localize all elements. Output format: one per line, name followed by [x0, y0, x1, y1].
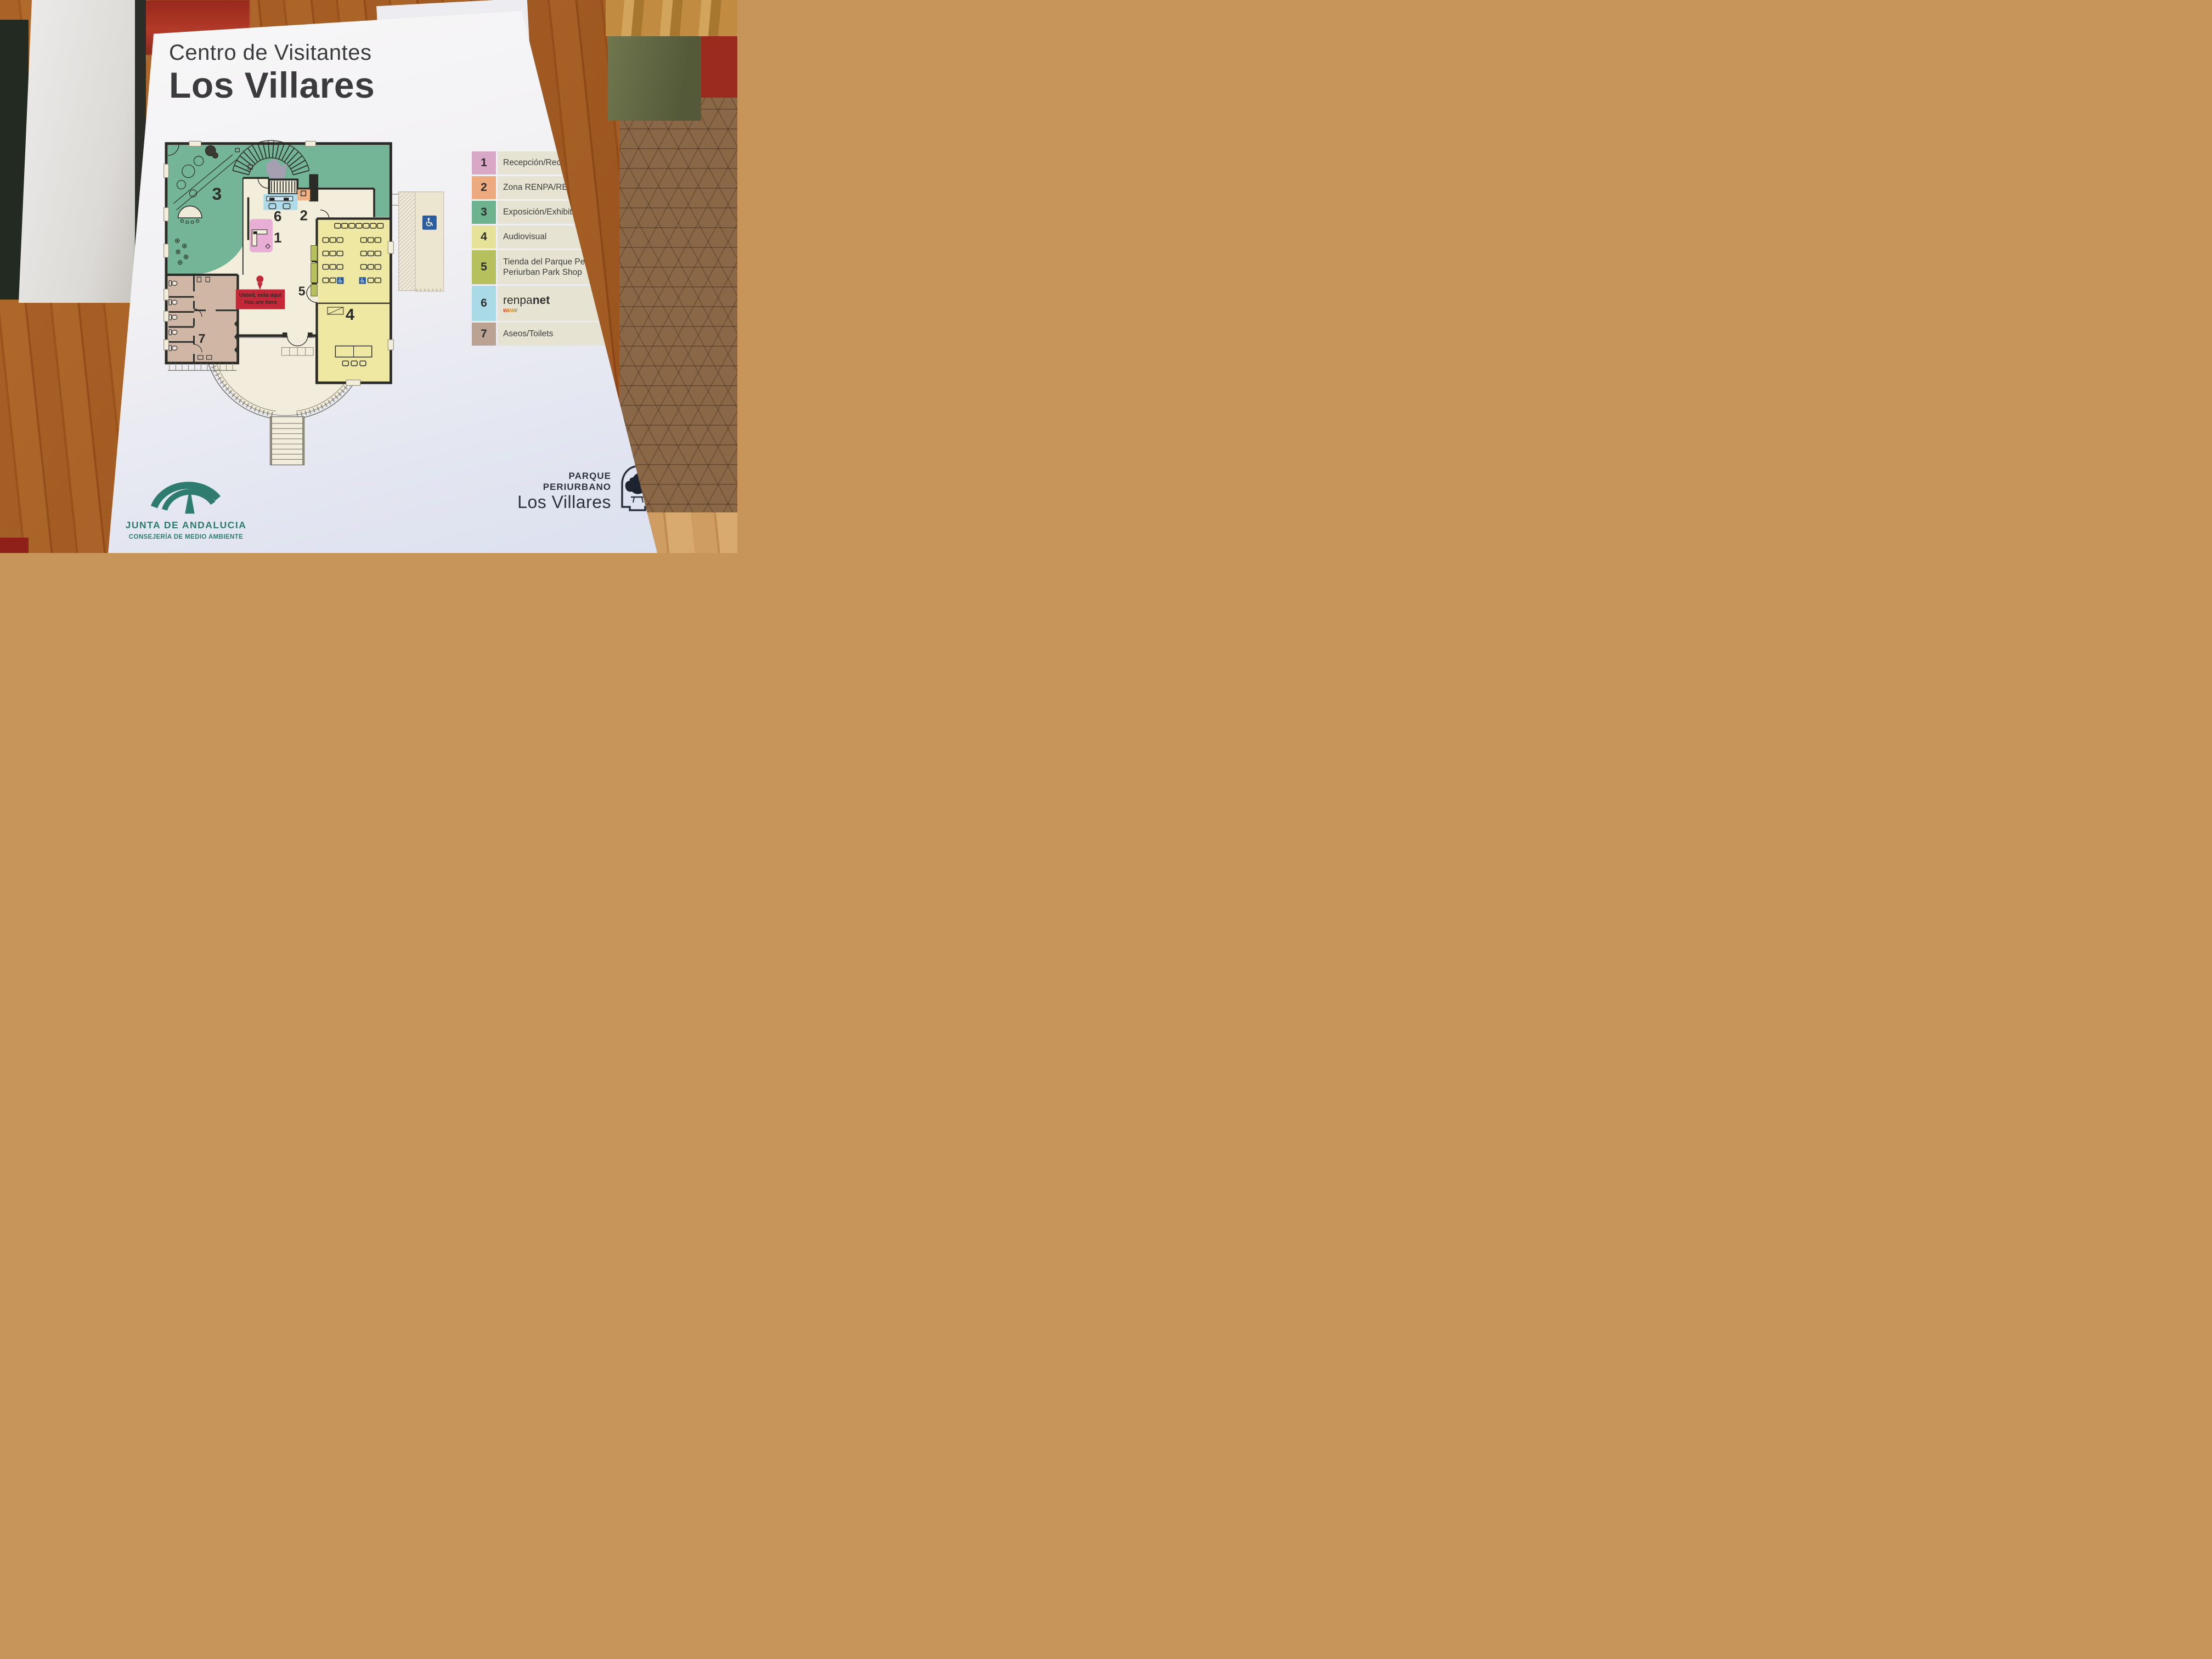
you-are-here-en: You are here — [244, 300, 277, 306]
junta-dept-name: CONSEJERÍA DE MEDIO AMBIENTE — [123, 534, 249, 540]
accessible-ramp — [391, 192, 444, 292]
legend-chip-1: 1 — [472, 151, 496, 174]
parque-periurbano-block: PARQUE PERIURBANO Los Villares — [501, 463, 658, 516]
you-are-here-es: Usted, esta aquí — [239, 292, 282, 298]
door-frame — [19, 0, 149, 303]
room-label-4: 4 — [346, 306, 354, 324]
title-line-2: Los Villares — [169, 65, 375, 106]
room-6-renpanet — [263, 194, 297, 210]
legend-chip-5: 5 — [472, 250, 496, 284]
entrance-stairs — [270, 417, 304, 465]
room-label-5: 5 — [298, 284, 306, 298]
room-7-toilets — [167, 275, 238, 370]
porch-rail — [168, 363, 236, 370]
room-4-audiovisual — [318, 220, 390, 382]
park-name: Los Villares — [501, 492, 611, 512]
room-5-shop — [311, 246, 318, 296]
junta-andalucia-block: JUNTA DE ANDALUCIA CONSEJERÍA DE MEDIO A… — [123, 458, 249, 540]
hex-tile-floor — [619, 91, 737, 524]
title-line-1: Centro de Visitantes — [169, 41, 375, 65]
room-label-1: 1 — [274, 230, 281, 246]
room-2-renpa — [297, 189, 310, 200]
room-label-3: 3 — [212, 184, 222, 204]
park-type: PARQUE PERIURBANO — [501, 471, 611, 492]
legend-chip-7: 7 — [472, 323, 496, 346]
junta-andalucia-logo-icon — [145, 458, 227, 515]
renpanet-www-icon: www — [503, 308, 522, 313]
sign-title: Centro de Visitantes Los Villares — [169, 41, 375, 106]
legend-chip-2: 2 — [472, 176, 496, 199]
exhibit-table-top — [606, 0, 737, 36]
legend-chip-3: 3 — [472, 201, 496, 224]
junta-org-name: JUNTA DE ANDALUCIA — [123, 520, 249, 531]
red-object-corner — [0, 538, 29, 553]
legend-chip-6: 6 — [472, 286, 496, 321]
room-1-reception — [250, 219, 273, 252]
room-label-6: 6 — [274, 209, 281, 224]
wood-floor-corner — [644, 512, 737, 553]
floor-plan: 3 6 2 1 5 4 7 Usted, esta aquí You are h… — [150, 126, 451, 474]
legend-chip-4: 4 — [472, 225, 496, 249]
room-label-2: 2 — [300, 208, 308, 223]
room-label-7: 7 — [198, 331, 205, 346]
